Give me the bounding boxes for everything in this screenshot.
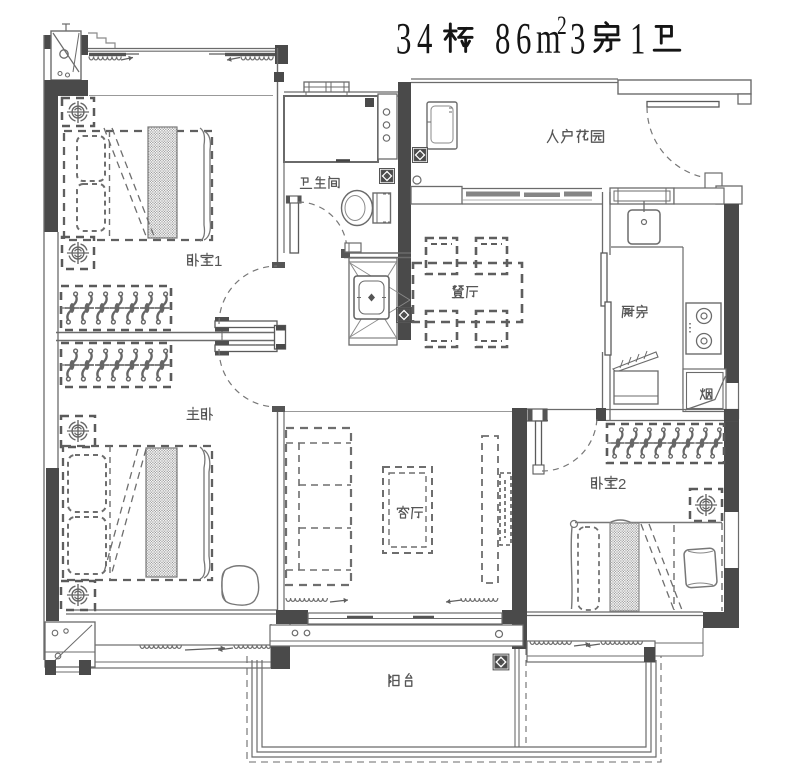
svg-text:3: 3 [570, 15, 585, 64]
svg-text:1: 1 [214, 253, 222, 270]
svg-text:2: 2 [557, 11, 567, 39]
svg-text:1: 1 [630, 15, 645, 64]
svg-text:6: 6 [516, 15, 531, 64]
svg-text:8: 8 [495, 15, 510, 64]
svg-text:4: 4 [417, 15, 432, 64]
svg-text:3: 3 [396, 15, 411, 64]
svg-text:2: 2 [618, 476, 626, 493]
